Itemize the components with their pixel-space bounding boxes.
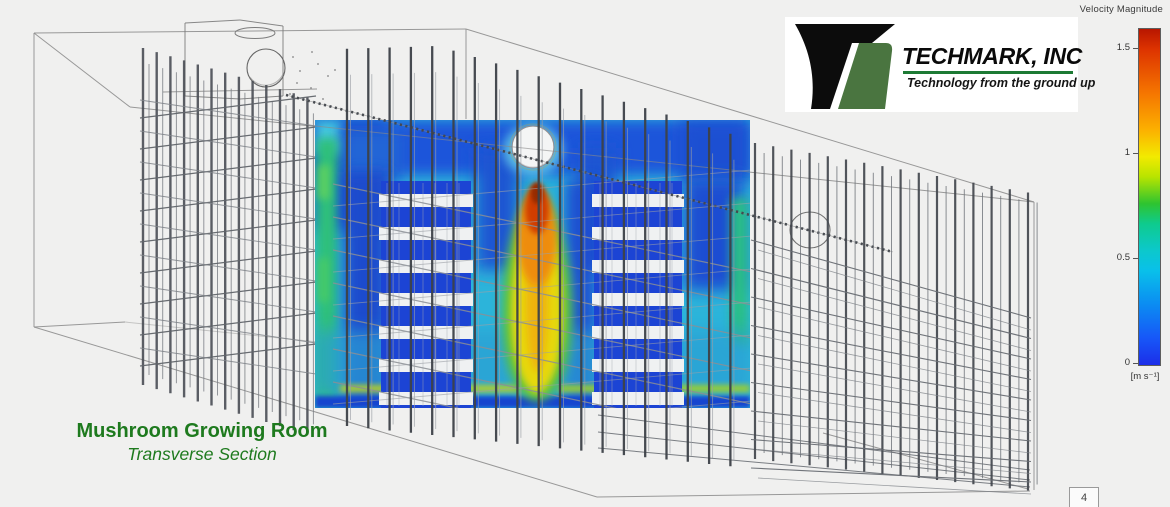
colorbar-tickmark [1133, 258, 1138, 259]
caption: Mushroom Growing Room Transverse Section [52, 419, 352, 465]
colorbar-tick-label: 1.5 [1100, 42, 1130, 53]
caption-subtitle: Transverse Section [52, 443, 352, 465]
page-number-box: 4 [1069, 487, 1099, 507]
colorbar-tick-label: 0 [1100, 357, 1130, 368]
page-number: 4 [1081, 492, 1087, 504]
techmark-logo: TECHMARK, INC Technology from the ground… [785, 17, 1078, 112]
rack-right [751, 143, 1037, 494]
rails-below-plane [598, 415, 1030, 487]
colorbar-title: Velocity Magnitude [1020, 4, 1163, 15]
rack-left [140, 48, 316, 434]
slide: Velocity Magnitude 1.5 1 0.5 0 [m s⁻¹] T… [0, 0, 1170, 507]
caption-title: Mushroom Growing Room [52, 419, 352, 443]
colorbar-gradient [1138, 28, 1161, 366]
colorbar-tickmark [1133, 153, 1138, 154]
colorbar-unit: [m s⁻¹] [1120, 371, 1170, 382]
techmark-logo-mark-icon [793, 22, 901, 112]
colorbar-tickmark [1133, 48, 1138, 49]
logo-tagline: Technology from the ground up [907, 76, 1075, 90]
logo-underline [903, 71, 1073, 74]
colorbar-tickmark [1133, 363, 1138, 364]
colorbar-tick-label: 0.5 [1100, 252, 1130, 263]
logo-company-name: TECHMARK, INC [902, 43, 1078, 70]
colorbar-tick-label: 1 [1100, 147, 1130, 158]
